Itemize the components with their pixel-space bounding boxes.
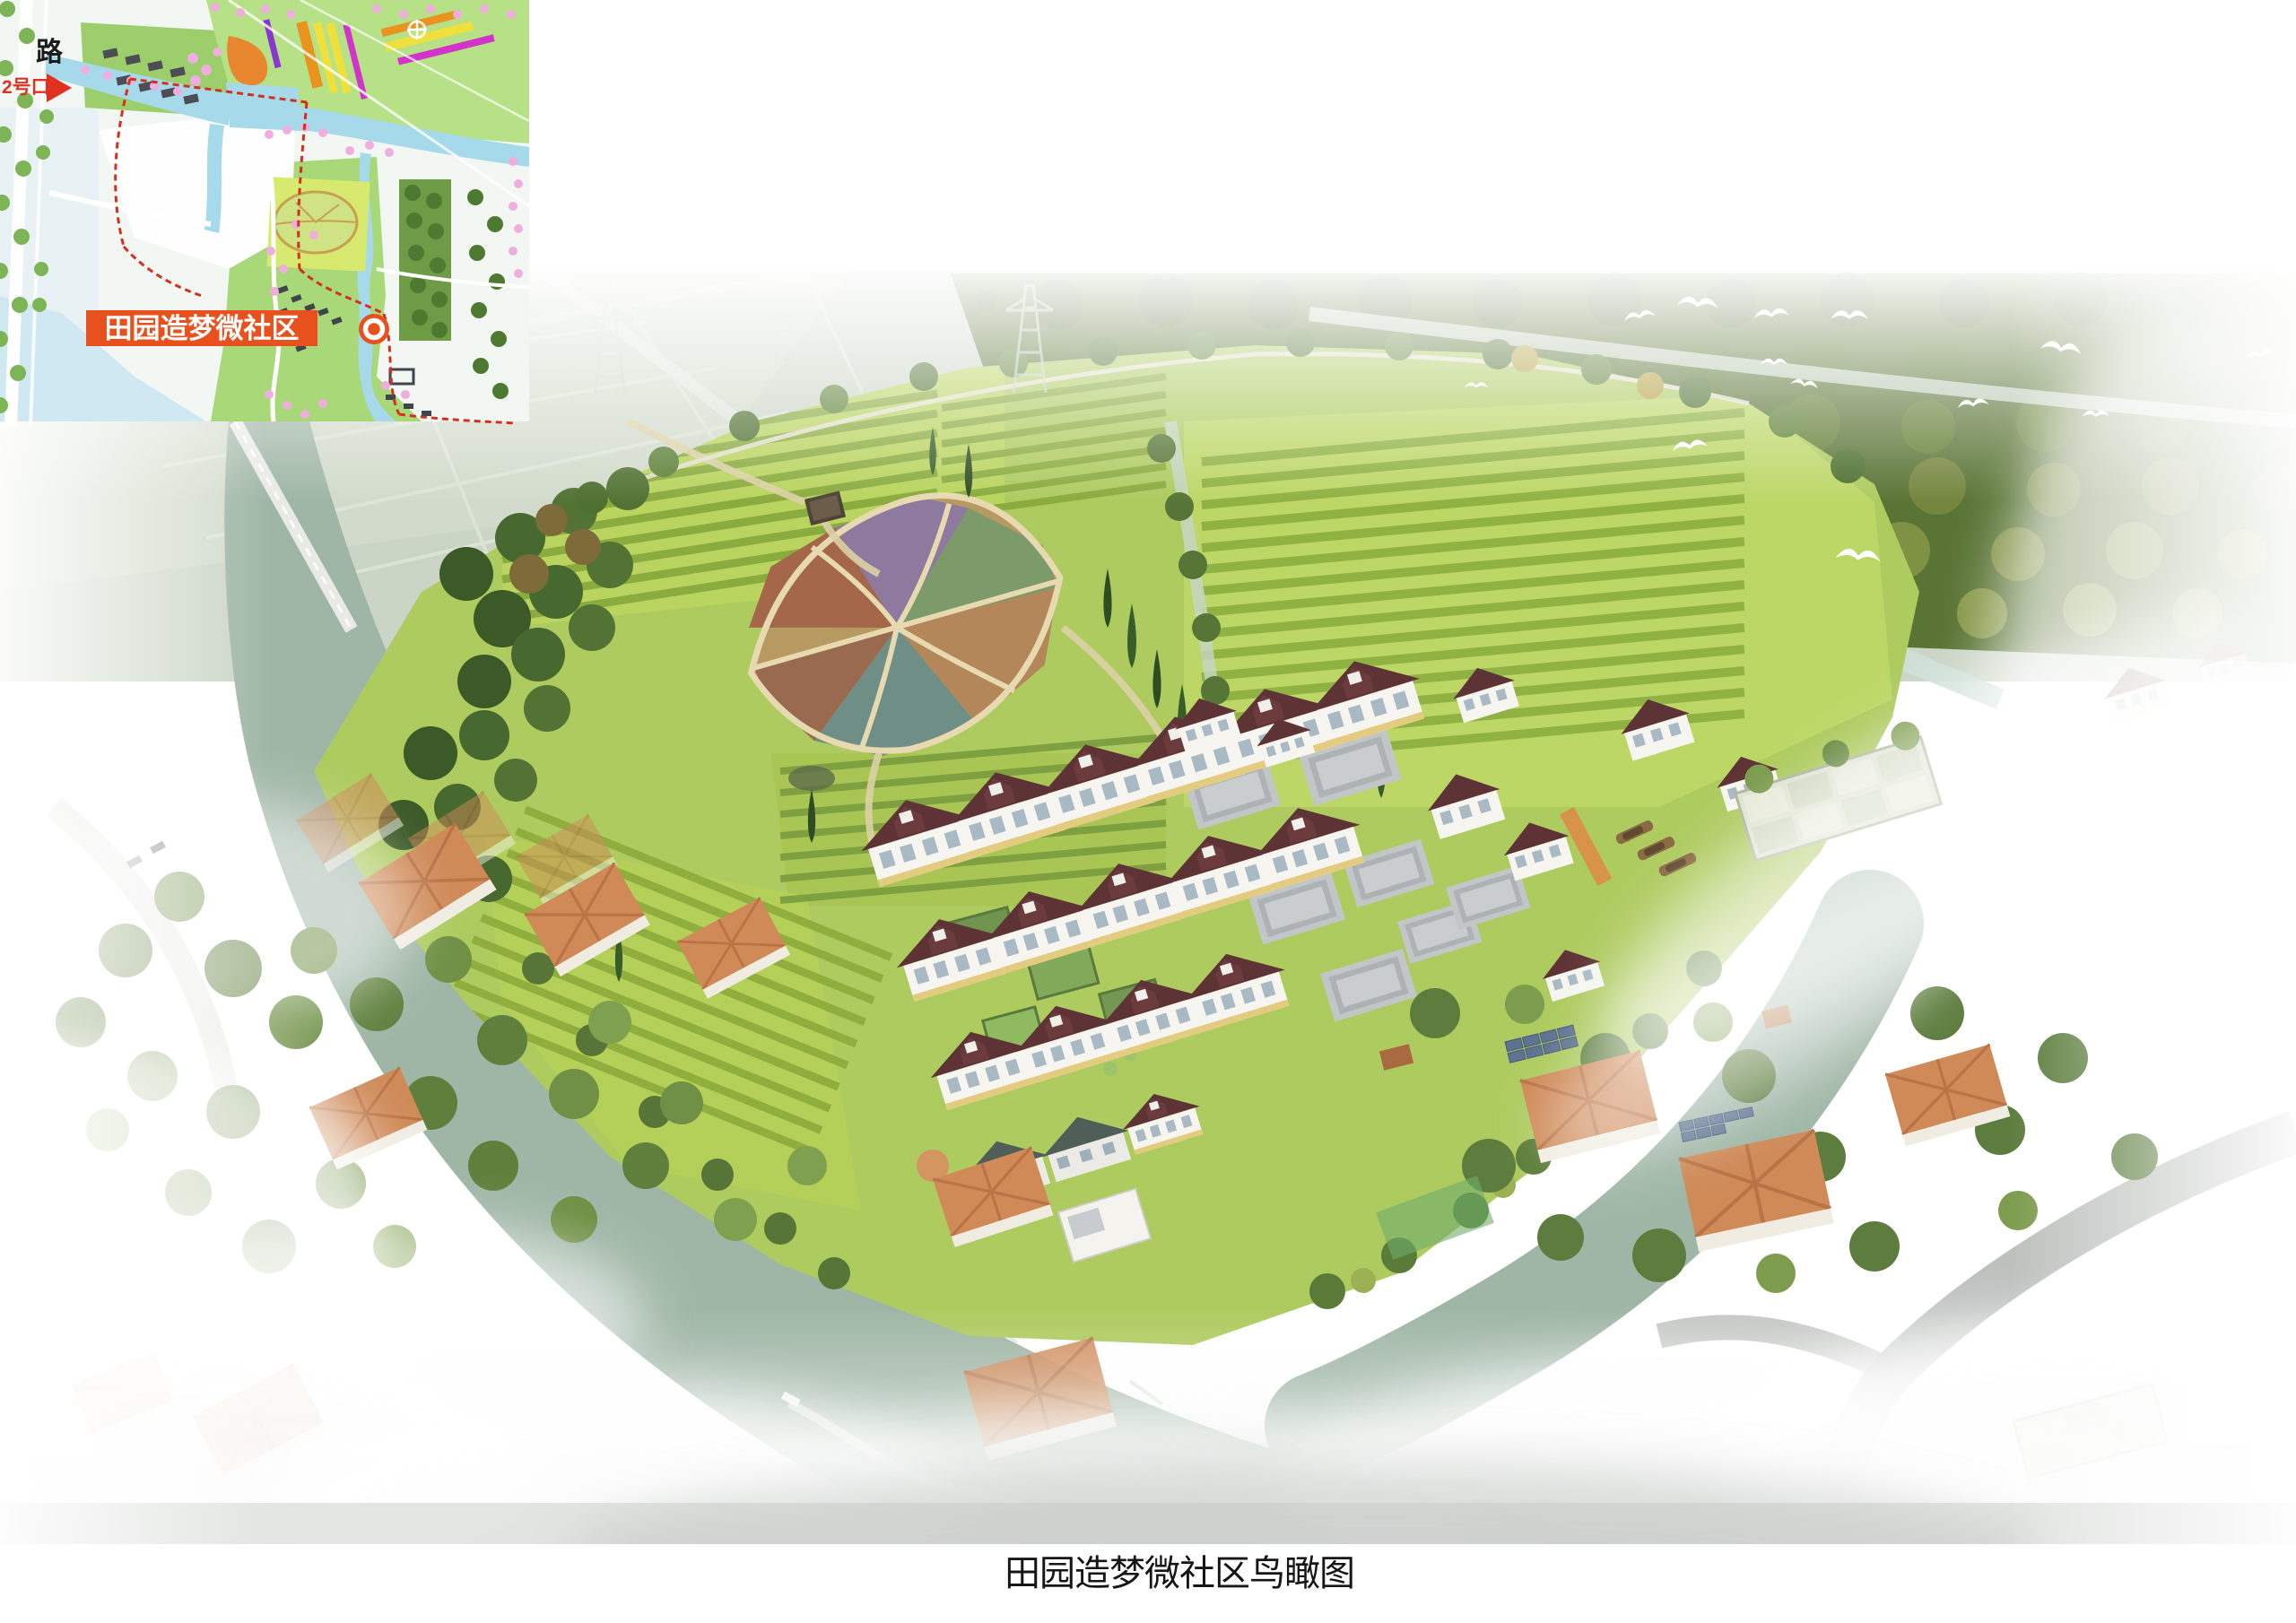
report-page: 路 2号口 田园造梦微社区 田园造梦微社区鸟瞰图 bbox=[0, 0, 2296, 1623]
road-label: 路 bbox=[36, 38, 64, 67]
figure-caption: 田园造梦微社区鸟瞰图 bbox=[1004, 1544, 1381, 1591]
inset-map: 路 2号口 田园造梦微社区 bbox=[0, 0, 529, 427]
site-label: 田园造梦微社区 bbox=[105, 313, 300, 344]
entrance-label: 2号口 bbox=[2, 77, 50, 98]
location-marker bbox=[359, 314, 389, 344]
aerial-render: 路 2号口 田园造梦微社区 bbox=[0, 0, 2296, 1623]
page-margin-top bbox=[529, 0, 2296, 271]
site-label-box: 田园造梦微社区 bbox=[86, 310, 317, 346]
